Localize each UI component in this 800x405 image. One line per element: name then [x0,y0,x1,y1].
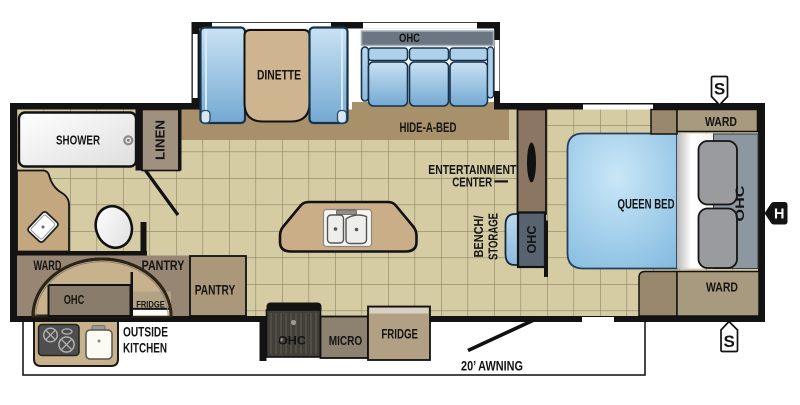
svg-text:SHOWER: SHOWER [56,133,100,148]
svg-text:KITCHEN: KITCHEN [123,340,167,356]
svg-text:20’ AWNING: 20’ AWNING [461,357,523,373]
svg-text:LINEN: LINEN [154,120,168,160]
svg-text:WARD: WARD [706,280,738,295]
svg-text:OHC: OHC [278,334,306,348]
svg-text:BENCH/: BENCH/ [472,215,486,257]
svg-text:S: S [724,332,735,351]
svg-text:FRIDGE: FRIDGE [136,299,165,309]
svg-text:HIDE-A-BED: HIDE-A-BED [400,119,457,135]
svg-text:OHC: OHC [733,185,747,221]
svg-text:CENTER: CENTER [452,174,492,189]
svg-text:OUTSIDE: OUTSIDE [123,324,168,340]
svg-text:OHC: OHC [64,292,85,307]
svg-text:OHC: OHC [399,33,420,45]
svg-text:STORAGE: STORAGE [487,213,501,260]
svg-text:DINETTE: DINETTE [257,68,301,83]
svg-text:FRIDGE: FRIDGE [381,326,418,342]
svg-text:WARD: WARD [705,114,737,129]
svg-text:PANTRY: PANTRY [195,281,236,297]
svg-text:WARD: WARD [34,257,62,273]
svg-text:QUEEN BED: QUEEN BED [618,197,675,212]
svg-text:H: H [774,207,784,223]
svg-text:S: S [714,80,725,99]
svg-text:OHC: OHC [525,226,539,254]
svg-text:MICRO: MICRO [329,333,363,348]
svg-text:PANTRY: PANTRY [142,258,185,273]
